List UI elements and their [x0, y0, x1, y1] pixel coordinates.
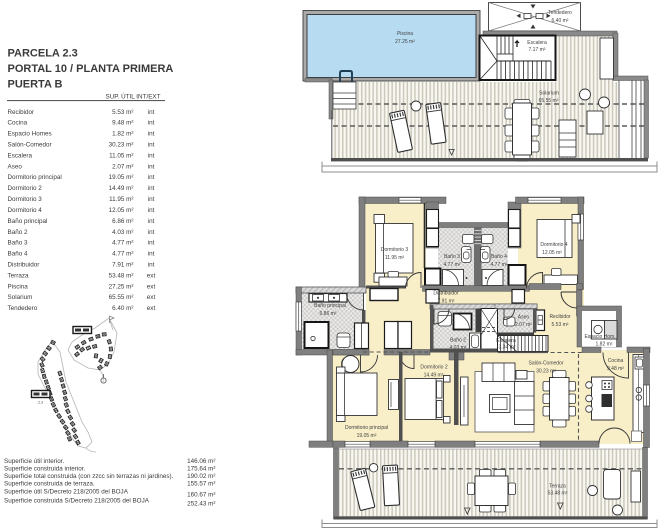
svg-text:7.17 m²: 7.17 m²	[529, 47, 546, 53]
svg-text:int: int	[148, 142, 155, 149]
svg-text:65.55 m²: 65.55 m²	[539, 98, 559, 104]
svg-text:int: int	[148, 207, 155, 214]
svg-text:Dormitorio 4: Dormitorio 4	[8, 207, 43, 214]
svg-text:12.05 m²: 12.05 m²	[109, 207, 134, 214]
svg-text:int: int	[148, 152, 155, 159]
svg-text:ext: ext	[147, 305, 156, 312]
svg-text:190.02 m²: 190.02 m²	[187, 473, 215, 480]
svg-text:Tendedero: Tendedero	[548, 10, 572, 16]
svg-text:4.03 m²: 4.03 m²	[112, 229, 133, 236]
svg-text:Dormitorio 2: Dormitorio 2	[420, 365, 447, 371]
svg-text:int: int	[148, 218, 155, 225]
svg-text:Baño 2: Baño 2	[8, 229, 28, 236]
svg-text:Aseo: Aseo	[8, 163, 23, 170]
svg-text:27.25 m²: 27.25 m²	[109, 283, 134, 290]
svg-text:SUP. ÚTIL INT/EXT: SUP. ÚTIL INT/EXT	[106, 92, 161, 101]
svg-text:11.95 m²: 11.95 m²	[109, 196, 133, 203]
svg-text:int: int	[148, 251, 155, 258]
svg-text:252.43 m²: 252.43 m²	[187, 501, 215, 508]
svg-text:Superficie construida de terra: Superficie construida de terraza.	[4, 481, 95, 488]
svg-text:Dormitorio 3: Dormitorio 3	[8, 196, 43, 203]
svg-text:53.48 m²: 53.48 m²	[109, 272, 134, 279]
svg-text:int: int	[148, 174, 155, 181]
svg-text:160.67 m²: 160.67 m²	[187, 492, 215, 499]
svg-text:Baño 3: Baño 3	[444, 254, 460, 260]
svg-text:1.82 m²: 1.82 m²	[112, 131, 133, 138]
svg-text:Baño 3: Baño 3	[8, 240, 28, 247]
svg-text:5.53 m²: 5.53 m²	[552, 322, 569, 328]
svg-text:6.86 m²: 6.86 m²	[320, 311, 337, 317]
svg-text:2.3: 2.3	[38, 401, 43, 405]
svg-text:Escalera: Escalera	[527, 40, 547, 46]
svg-text:175.64 m²: 175.64 m²	[187, 466, 215, 473]
svg-text:Tendedero: Tendedero	[8, 305, 38, 312]
svg-text:Baño 4: Baño 4	[8, 251, 28, 258]
svg-text:12.05 m²: 12.05 m²	[542, 250, 562, 256]
svg-text:Baño principal: Baño principal	[8, 218, 48, 225]
svg-text:PUERTA B: PUERTA B	[8, 79, 63, 91]
svg-text:int: int	[148, 120, 155, 127]
svg-text:4.77 m²: 4.77 m²	[112, 251, 133, 258]
svg-text:6.40 m²: 6.40 m²	[552, 18, 569, 24]
svg-text:PORTAL 10 / PLANTA PRIMERA: PORTAL 10 / PLANTA PRIMERA	[8, 63, 174, 75]
svg-text:Terraza: Terraza	[549, 484, 566, 490]
svg-text:14.49 m²: 14.49 m²	[424, 373, 444, 379]
svg-text:65.55 m²: 65.55 m²	[109, 294, 134, 301]
svg-text:146.06 m²: 146.06 m²	[187, 458, 215, 465]
svg-text:Escalera: Escalera	[496, 338, 516, 344]
svg-text:Aseo: Aseo	[518, 315, 530, 321]
svg-text:int: int	[148, 262, 155, 269]
svg-text:4.77 m²: 4.77 m²	[491, 262, 508, 268]
svg-text:ext: ext	[147, 272, 156, 279]
svg-text:int: int	[148, 163, 155, 170]
svg-text:Espacio Hom.: Espacio Hom.	[584, 334, 615, 340]
svg-text:30.23 m²: 30.23 m²	[536, 369, 556, 375]
svg-text:14.49 m²: 14.49 m²	[109, 185, 134, 192]
svg-text:PARCELA 2.3: PARCELA 2.3	[8, 48, 78, 60]
svg-text:2.07 m²: 2.07 m²	[515, 322, 532, 328]
svg-text:Distribuidor: Distribuidor	[433, 291, 459, 297]
svg-text:9.48 m²: 9.48 m²	[112, 120, 133, 127]
svg-text:6.40 m²: 6.40 m²	[112, 305, 133, 312]
svg-text:Baño principal: Baño principal	[314, 303, 346, 309]
svg-text:Terraza: Terraza	[8, 272, 29, 279]
svg-text:Piscina: Piscina	[397, 31, 413, 37]
svg-text:Dormitorio 4: Dormitorio 4	[540, 242, 567, 248]
svg-text:Salón-Comedor: Salón-Comedor	[8, 142, 52, 149]
svg-text:Cocina: Cocina	[8, 120, 28, 127]
svg-text:7.91 m²: 7.91 m²	[112, 262, 133, 269]
svg-text:Superficie construida interior: Superficie construida interior.	[4, 466, 85, 473]
svg-text:2.07 m²: 2.07 m²	[112, 163, 133, 170]
svg-text:Solarium: Solarium	[8, 294, 33, 301]
svg-text:1.82 m²: 1.82 m²	[596, 342, 613, 348]
svg-text:Baño 4: Baño 4	[491, 254, 507, 260]
svg-text:Salón-Comedor: Salón-Comedor	[528, 361, 563, 367]
svg-text:Dormitorio 2: Dormitorio 2	[8, 185, 43, 192]
svg-text:19.05 m²: 19.05 m²	[109, 174, 134, 181]
svg-text:Solarium: Solarium	[539, 91, 559, 97]
svg-text:Dormitorio principal: Dormitorio principal	[345, 425, 388, 431]
svg-text:6.86 m²: 6.86 m²	[112, 218, 133, 225]
svg-text:Distribuidor: Distribuidor	[8, 262, 40, 269]
svg-text:4.77 m²: 4.77 m²	[112, 240, 133, 247]
svg-text:19.05 m²: 19.05 m²	[357, 433, 377, 439]
svg-text:3.34 m²: 3.34 m²	[499, 345, 516, 351]
svg-text:int: int	[148, 229, 155, 236]
svg-text:int: int	[148, 240, 155, 247]
svg-text:Dormitorio 3: Dormitorio 3	[381, 247, 408, 253]
svg-text:4.77 m²: 4.77 m²	[444, 262, 461, 268]
svg-text:Espacio Homes: Espacio Homes	[8, 131, 52, 138]
svg-text:Superficie útil interior.: Superficie útil interior.	[4, 458, 64, 465]
svg-text:30.23 m²: 30.23 m²	[109, 142, 134, 149]
svg-text:Superficie útil S/Decreto 218/: Superficie útil S/Decreto 218/2005 del B…	[4, 489, 129, 496]
svg-text:27.25 m²: 27.25 m²	[395, 39, 415, 45]
svg-text:53.48 m²: 53.48 m²	[548, 491, 568, 497]
svg-text:5.53 m²: 5.53 m²	[112, 109, 133, 116]
svg-text:int: int	[148, 196, 155, 203]
svg-text:int: int	[148, 185, 155, 192]
svg-text:11.05 m²: 11.05 m²	[109, 152, 133, 159]
svg-text:int: int	[148, 109, 155, 116]
svg-text:Piscina: Piscina	[8, 283, 29, 290]
svg-text:11.95 m²: 11.95 m²	[385, 255, 405, 261]
svg-text:155.57 m²: 155.57 m²	[187, 481, 215, 488]
svg-text:Recibidor: Recibidor	[549, 314, 570, 320]
svg-text:Escalera: Escalera	[8, 152, 33, 159]
svg-text:Recibidor: Recibidor	[8, 109, 35, 116]
svg-text:int: int	[148, 131, 155, 138]
svg-text:Cocina: Cocina	[608, 358, 624, 364]
svg-text:Dormitorio principal: Dormitorio principal	[8, 174, 62, 181]
svg-text:ext: ext	[147, 294, 156, 301]
svg-text:ext: ext	[147, 283, 156, 290]
svg-text:Superficie total construida (c: Superficie total construida (con zzcc si…	[4, 473, 174, 480]
svg-text:Superficie construida S/Decret: Superficie construida S/Decreto 218/2005…	[4, 498, 150, 505]
svg-text:Baño 2: Baño 2	[450, 338, 466, 344]
